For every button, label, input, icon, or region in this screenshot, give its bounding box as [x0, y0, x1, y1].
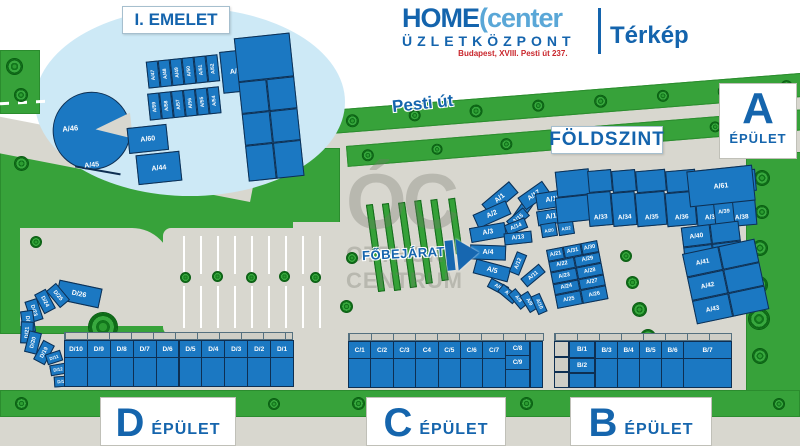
unit-cell: [635, 169, 667, 194]
unit-cell: [234, 33, 294, 83]
unit-b-5[interactable]: B/5: [639, 341, 662, 388]
unit-d-5[interactable]: D/5: [179, 340, 203, 387]
unit-cell: [555, 194, 592, 223]
unit-a-35[interactable]: A/35: [635, 191, 668, 227]
building-d-label: D ÉPÜLET: [100, 397, 236, 446]
unit-c-3[interactable]: C/3: [393, 341, 416, 388]
parking-stripes: [168, 236, 330, 274]
unit-d-9[interactable]: D/9: [87, 340, 111, 387]
building-a-label: A ÉPÜLET: [719, 83, 797, 159]
unit-c-2[interactable]: C/2: [370, 341, 393, 388]
inset-title: I. EMELET: [122, 6, 230, 34]
unit-cell: [270, 108, 301, 143]
main-entrance-label: FŐBEJÁRAT: [362, 244, 446, 263]
unit-cell: [266, 76, 297, 111]
unit-a-60[interactable]: A/60: [127, 124, 169, 154]
unit-a-20[interactable]: A/20: [540, 222, 558, 238]
entrance-cell: [554, 372, 569, 388]
brand-address: Budapest, XVIII. Pesti út 237.: [402, 50, 576, 58]
unit-a-10[interactable]: A/10: [530, 293, 547, 315]
unit-a-52[interactable]: A/52: [205, 54, 220, 82]
unit-b-1[interactable]: B/1: [569, 341, 595, 358]
unit-c-1[interactable]: C/1: [348, 341, 371, 388]
entrance-cell: [554, 341, 569, 357]
unit-c-7[interactable]: C/7: [482, 341, 505, 388]
first-floor-inset: A/46 A/45 A/47A/48A/49A/50A/51A/52A/59A/…: [33, 31, 317, 208]
unit-a-33[interactable]: A/33: [587, 191, 614, 227]
brand-home: HOME: [402, 3, 479, 33]
unit-cell: [611, 169, 637, 193]
unit-a-11[interactable]: A/11: [520, 264, 545, 288]
unit-c-5[interactable]: C/5: [438, 341, 461, 388]
unit-d-6[interactable]: D/6: [156, 340, 180, 387]
unit-b-4[interactable]: B/4: [617, 341, 640, 388]
ground-floor-label: FÖLDSZINT: [551, 126, 663, 154]
brand-center: (center: [479, 3, 562, 33]
entrance-arrow-icon: [444, 234, 484, 274]
tree-icon: [6, 58, 23, 75]
building-a-right-column: A/41A/42A/43: [682, 239, 769, 325]
unit-cell: [242, 111, 273, 146]
unit-d-8[interactable]: D/8: [110, 340, 134, 387]
unit-b-6[interactable]: B/6: [661, 341, 684, 388]
unit-b-7[interactable]: B/7: [683, 341, 732, 388]
unit-c4[interactable]: C4: [415, 341, 438, 388]
unit-cell: [530, 341, 543, 388]
unit-d-3[interactable]: D/3: [224, 340, 248, 387]
unit-a-44[interactable]: A/44: [135, 151, 182, 185]
unit-cell: [245, 143, 277, 182]
unit-a-46-label: A/46: [62, 123, 79, 134]
brand-logo: HOME(center ÜZLETKÖZPONT Budapest, XVIII…: [402, 5, 576, 58]
tree-icon: [14, 88, 28, 102]
unit-cell: [587, 169, 613, 193]
unit-d-7[interactable]: D/7: [133, 340, 157, 387]
unit-a-61[interactable]: A/61: [686, 165, 755, 208]
unit-d-4[interactable]: D/4: [201, 340, 225, 387]
unit-cell: [273, 140, 305, 179]
unit-a-12[interactable]: A/12: [509, 251, 527, 276]
unit-a-13[interactable]: A/13: [503, 231, 532, 246]
unit-b-2[interactable]: B/2: [569, 358, 595, 373]
unit-a-54[interactable]: A/54: [207, 86, 222, 114]
unit-cell: [238, 79, 269, 114]
entrance-cell: [554, 357, 569, 372]
unit-c-8-9[interactable]: C/8C/9: [505, 341, 530, 388]
building-c-label: C ÉPÜLET: [366, 397, 506, 446]
building-a-block: A/21A/31A/30A/22A/29A/23A/28A/24A/27A/25…: [546, 240, 608, 307]
unit-d-2[interactable]: D/2: [247, 340, 271, 387]
unit-d-1[interactable]: D/1: [270, 340, 294, 387]
logo-divider: [598, 8, 601, 54]
building-b-label: B ÉPÜLET: [570, 397, 712, 446]
unit-d-10[interactable]: D/10: [64, 340, 88, 387]
parking-stripes: [168, 286, 330, 328]
unit-b-3[interactable]: B/3: [595, 341, 618, 388]
map-tab-label[interactable]: Térkép: [610, 22, 689, 50]
unit-cell: [569, 373, 595, 388]
mall-map: ÓC OTTHON CENTRUM A/46 A/45 A/47A/48A/49…: [0, 0, 800, 446]
unit-c-6[interactable]: C/6: [460, 341, 483, 388]
unit-a-34[interactable]: A/34: [611, 191, 638, 227]
brand-subtitle: ÜZLETKÖZPONT: [402, 34, 576, 48]
